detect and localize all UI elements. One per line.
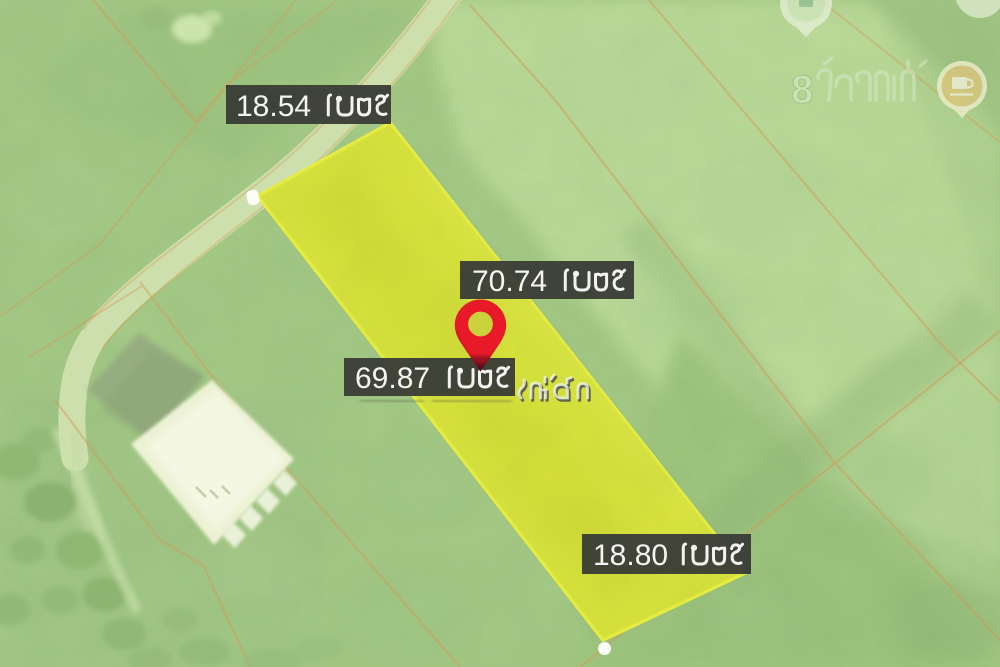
svg-text:18.54: 18.54 — [236, 90, 311, 123]
svg-text:18.80: 18.80 — [593, 539, 668, 572]
svg-text:69.87: 69.87 — [355, 362, 430, 395]
svg-text:70.74: 70.74 — [472, 265, 547, 298]
svg-text:8: 8 — [791, 68, 813, 112]
